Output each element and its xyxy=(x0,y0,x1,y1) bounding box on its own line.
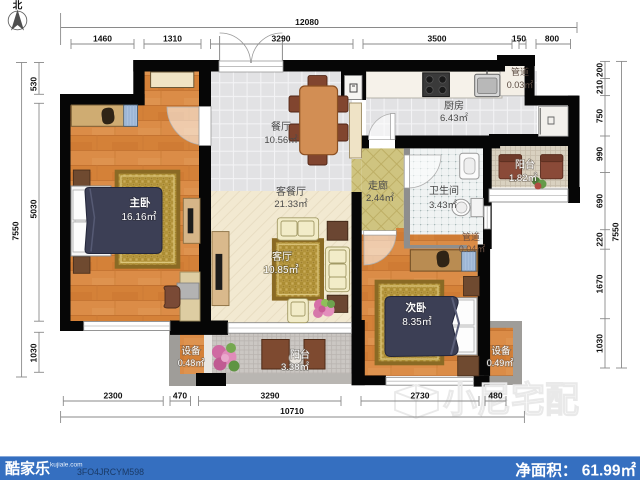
svg-text:1460: 1460 xyxy=(93,34,112,44)
svg-text:走廊: 走廊 xyxy=(368,179,388,192)
svg-text:3290: 3290 xyxy=(261,391,280,401)
svg-text:客厅: 客厅 xyxy=(272,250,292,263)
svg-text:2.44㎡: 2.44㎡ xyxy=(366,193,394,204)
svg-text:0.49㎡: 0.49㎡ xyxy=(487,358,514,368)
svg-text:3.38㎡: 3.38㎡ xyxy=(281,362,309,373)
svg-text:1310: 1310 xyxy=(163,34,182,44)
svg-text:750: 750 xyxy=(595,109,605,123)
svg-text:7550: 7550 xyxy=(11,221,21,240)
svg-text:阳台: 阳台 xyxy=(290,348,310,361)
svg-text:酷家乐: 酷家乐 xyxy=(5,460,50,478)
svg-text:12080: 12080 xyxy=(295,17,319,27)
svg-text:3.43㎡: 3.43㎡ xyxy=(429,200,457,211)
svg-text:1030: 1030 xyxy=(595,334,605,353)
svg-text:0.03㎡: 0.03㎡ xyxy=(507,80,534,90)
svg-text:北: 北 xyxy=(13,0,23,12)
svg-text:6.43㎡: 6.43㎡ xyxy=(440,113,468,124)
svg-text:10.56㎡: 10.56㎡ xyxy=(264,135,298,146)
svg-text:厨房: 厨房 xyxy=(444,99,464,112)
svg-text:200: 200 xyxy=(595,63,605,77)
svg-text:次卧: 次卧 xyxy=(406,301,427,314)
svg-text:客餐厅: 客餐厅 xyxy=(276,185,306,198)
svg-text:150: 150 xyxy=(512,34,526,44)
svg-text:2730: 2730 xyxy=(411,391,430,401)
svg-text:阳台: 阳台 xyxy=(515,158,535,171)
svg-text:1030: 1030 xyxy=(29,343,39,362)
svg-text:3500: 3500 xyxy=(428,34,447,44)
svg-text:0.48㎡: 0.48㎡ xyxy=(178,358,205,368)
svg-text:设备: 设备 xyxy=(181,345,201,357)
svg-text:3FO4JRCYM598: 3FO4JRCYM598 xyxy=(77,467,144,477)
svg-text:2300: 2300 xyxy=(104,391,123,401)
svg-text:小尼宅配: 小尼宅配 xyxy=(443,379,579,420)
svg-text:主卧: 主卧 xyxy=(130,196,151,209)
svg-text:470: 470 xyxy=(173,391,187,401)
svg-text:设备: 设备 xyxy=(491,345,511,357)
svg-text:1670: 1670 xyxy=(595,274,605,293)
svg-text:餐厅: 餐厅 xyxy=(271,120,291,133)
svg-text:管道: 管道 xyxy=(511,66,529,77)
svg-text:16.16㎡: 16.16㎡ xyxy=(121,211,156,223)
svg-text:1.82㎡: 1.82㎡ xyxy=(509,173,537,184)
svg-text:卫生间: 卫生间 xyxy=(429,184,459,197)
svg-text:10.85㎡: 10.85㎡ xyxy=(263,264,298,276)
svg-text:8.35㎡: 8.35㎡ xyxy=(402,316,431,328)
svg-text:990: 990 xyxy=(595,147,605,161)
svg-text:690: 690 xyxy=(595,194,605,208)
svg-text:净面积： 61.99㎡: 净面积： 61.99㎡ xyxy=(515,461,636,480)
svg-text:480: 480 xyxy=(488,391,502,401)
svg-text:管道: 管道 xyxy=(462,231,480,242)
svg-text:21.33㎡: 21.33㎡ xyxy=(274,199,308,210)
svg-text:5030: 5030 xyxy=(29,199,39,218)
svg-text:3290: 3290 xyxy=(272,34,291,44)
svg-text:10710: 10710 xyxy=(280,406,304,416)
svg-text:7550: 7550 xyxy=(611,222,621,241)
svg-text:210: 210 xyxy=(595,80,605,94)
svg-text:530: 530 xyxy=(29,77,39,91)
svg-text:220: 220 xyxy=(595,232,605,246)
svg-text:800: 800 xyxy=(545,34,559,44)
svg-text:0.04㎡: 0.04㎡ xyxy=(459,244,486,254)
